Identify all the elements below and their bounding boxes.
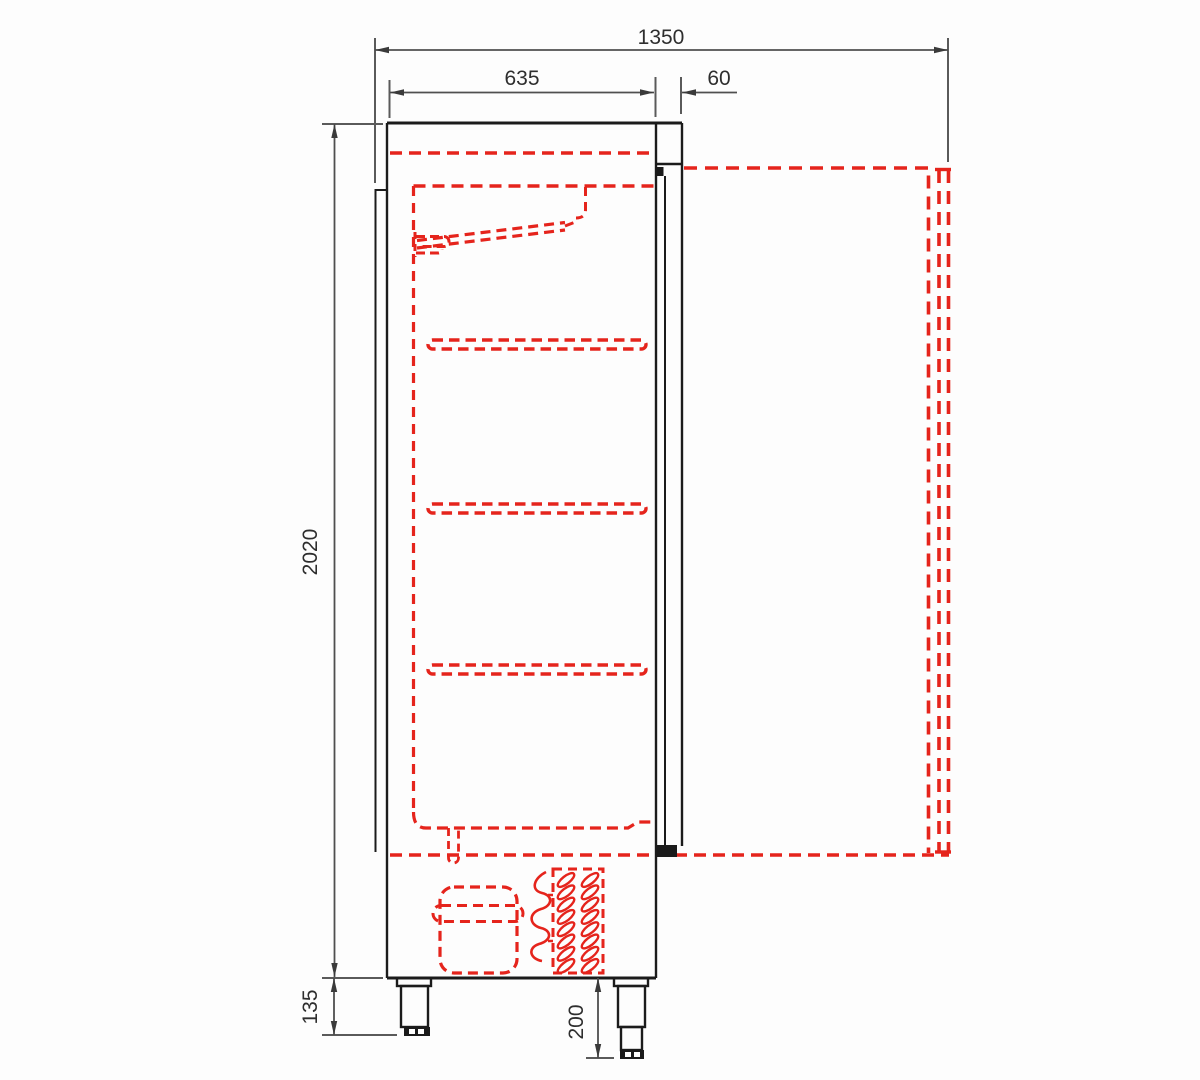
capillary-squiggle [531, 872, 550, 961]
rear-panel [375, 190, 388, 852]
right-foot-pad-notch1 [625, 1052, 631, 1057]
arrowhead-top [331, 978, 337, 992]
evaporator-connector [565, 221, 578, 226]
dim-label-2020: 2020 [299, 529, 322, 576]
compressor [433, 887, 523, 973]
capillary-tube [531, 872, 553, 961]
door-closed [656, 123, 682, 857]
shelf-1 [428, 340, 646, 349]
left-foot-leg [401, 986, 428, 1027]
shelves [428, 340, 646, 674]
door-bottom-hinge [656, 845, 677, 857]
left-foot-pad-notch1 [409, 1029, 415, 1034]
arrowhead-bottom [595, 1044, 601, 1058]
arrowhead-left [375, 47, 389, 53]
right-foot-leg [618, 986, 645, 1027]
arrowhead-top [331, 124, 337, 138]
dim-label-135: 135 [299, 989, 322, 1024]
dim-label-635: 635 [504, 67, 539, 90]
liner-bottom [414, 812, 655, 828]
arrowhead-bottom [331, 963, 337, 977]
dim-label-200: 200 [565, 1004, 588, 1039]
arrowhead-top [595, 978, 601, 992]
arrowhead-right [640, 89, 654, 95]
right-foot-spindle [621, 1027, 642, 1050]
feet [397, 978, 648, 1059]
cabinet-outline [375, 123, 683, 1059]
right-foot-pad-notch2 [634, 1052, 640, 1057]
open-door-projection [390, 168, 951, 855]
compressor-body [440, 887, 517, 973]
left-foot-pad [404, 1027, 430, 1036]
evaporator [415, 187, 586, 257]
dim-label-60: 60 [707, 67, 730, 90]
door-top-block [656, 123, 682, 164]
arrowhead [682, 89, 696, 95]
open-door-inner-face [684, 168, 929, 853]
arrowhead-left [390, 89, 404, 95]
condenser [553, 869, 603, 975]
condenser-coil-pattern [556, 871, 600, 975]
arrowhead-right [934, 47, 948, 53]
technical-drawing-page: 1350 635 60 2020 135 200 [0, 0, 1200, 1080]
dimension-door-thickness: 60 [681, 67, 737, 114]
evaporator-fin-row2 [416, 249, 442, 253]
right-foot-extended [614, 978, 648, 1059]
arrowhead-bottom [331, 1021, 337, 1035]
drain-tube [449, 828, 459, 863]
shelf-3 [428, 665, 646, 674]
dimension-total-depth: 1350 [375, 26, 948, 183]
evaporator-suction-line [576, 187, 586, 218]
refrigerator-side-section-drawing: 1350 635 60 2020 135 200 [0, 0, 1200, 1080]
dimension-body-depth: 635 [390, 67, 656, 118]
shelf-2 [428, 504, 646, 513]
left-foot-pad-notch2 [418, 1029, 424, 1034]
left-foot [397, 978, 431, 1036]
dimension-foot-min: 135 [299, 978, 397, 1035]
dimension-body-height: 2020 [299, 124, 383, 977]
dimension-foot-max: 200 [565, 978, 614, 1058]
dim-label-1350: 1350 [638, 26, 685, 49]
right-foot-pad [620, 1050, 644, 1059]
door-top-hinge [657, 167, 664, 176]
compressor-mounting-band [433, 906, 523, 922]
evaporator-top-line [417, 223, 565, 241]
